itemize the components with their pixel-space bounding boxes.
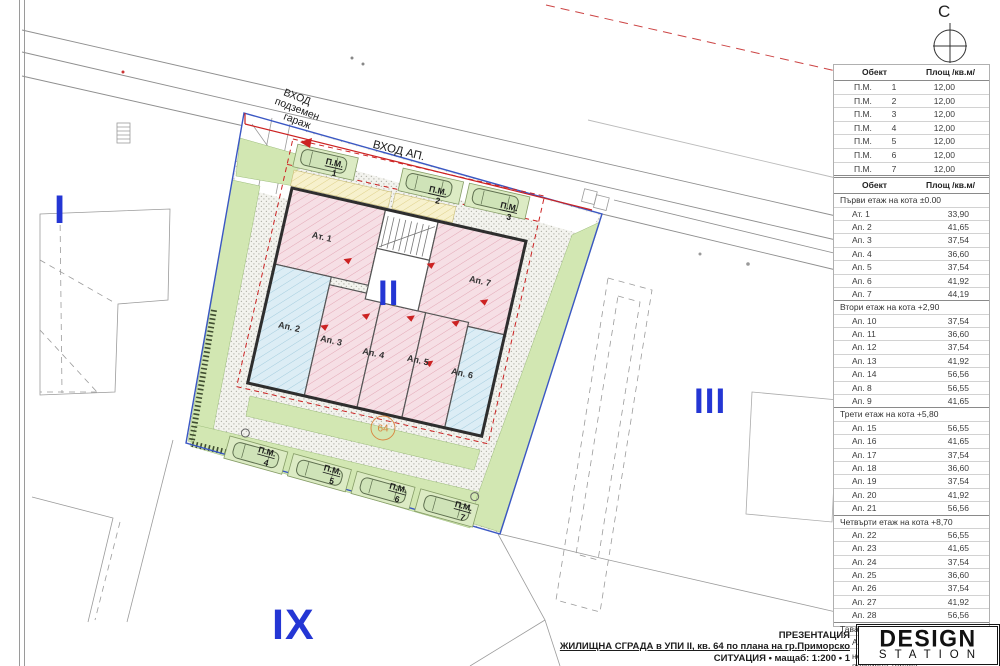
site-plan-page: Ат. 1 Ап. 2 Ап. 3 Ап. 4 Ап. 5 Ап. 6 Ап. …	[0, 0, 1000, 666]
table-row: Ап. 2856,56	[834, 608, 989, 621]
table-row: Ап. 2156,56	[834, 501, 989, 514]
table-row: Ап. 1456,56	[834, 367, 989, 380]
table-row: Ап. 1341,92	[834, 354, 989, 367]
table-row: Ат. 133,90	[834, 207, 989, 220]
table-row: Ап. 1737,54	[834, 448, 989, 461]
col-object: Обект	[834, 65, 908, 80]
table-row: П.М.412,00	[834, 121, 989, 135]
zone-label-i: I	[54, 190, 66, 230]
floor-section-title: Трети етаж на кота +5,80	[834, 407, 989, 420]
table-row: П.М.312,00	[834, 107, 989, 121]
table-row: Ап. 337,54	[834, 233, 989, 246]
floor-section-title: Втори етаж на кота +2,90	[834, 300, 989, 313]
table-row: Ап. 744,19	[834, 287, 989, 300]
table-row: Ап. 2437,54	[834, 555, 989, 568]
table-row: Ап. 2637,54	[834, 581, 989, 594]
plot-number-text: 64	[377, 424, 389, 435]
table-row: П.М.712,00	[834, 162, 989, 176]
table-row: Ап. 1237,54	[834, 340, 989, 353]
street-centerline-red-dashed	[546, 5, 836, 71]
north-letter: С	[938, 2, 950, 22]
table-row: Ап. 537,54	[834, 260, 989, 273]
design-station-logo: DESIGN STATION	[858, 626, 998, 665]
table-row: Ап. 1641,65	[834, 434, 989, 447]
apartments-table-sections: Първи етаж на кота ±0.00Ат. 133,90Ап. 24…	[834, 193, 989, 666]
col-area: Площ /кв.м/	[908, 178, 989, 193]
zone-label-iii: III	[694, 384, 726, 419]
parking-table-rows: П.М.112,00П.М.212,00П.М.312,00П.М.412,00…	[834, 81, 989, 175]
table-row: Ап. 2741,92	[834, 595, 989, 608]
apartments-table: Обект Площ /кв.м/ Първи етаж на кота ±0.…	[834, 178, 989, 666]
logo-line-design: DESIGN	[859, 626, 997, 649]
table-row: Ап. 2041,92	[834, 488, 989, 501]
title-line-situation: СИТУАЦИЯ • мащаб: 1:200 • 1	[560, 653, 850, 665]
table-row: П.М.112,00	[834, 81, 989, 94]
table-row: Ап. 2256,55	[834, 528, 989, 541]
floor-section-title: Четвърти етаж на кота +8,70	[834, 515, 989, 528]
col-object: Обект	[834, 178, 908, 193]
table-row: П.М.212,00	[834, 94, 989, 108]
col-area: Площ /кв.м/	[908, 65, 989, 80]
table-row: Ап. 641,92	[834, 274, 989, 287]
table-row: П.М.612,00	[834, 148, 989, 162]
table-row: Ап. 856,55	[834, 381, 989, 394]
zone-label-ix: IX	[272, 604, 315, 647]
area-tables-panel: Обект Площ /кв.м/ П.М.112,00П.М.212,00П.…	[833, 64, 990, 627]
table-row: Ап. 2341,65	[834, 541, 989, 554]
table-row: П.М.512,00	[834, 134, 989, 148]
title-line-project: ЖИЛИЩНА СГРАДА в УПИ II, кв. 64 по плана…	[560, 641, 850, 653]
title-block: ПРЕЗЕНТАЦИЯ ЖИЛИЩНА СГРАДА в УПИ II, кв.…	[560, 630, 850, 665]
table-row: Ап. 2536,60	[834, 568, 989, 581]
table-row: Ап. 1136,60	[834, 327, 989, 340]
table-row: Ап. 1836,60	[834, 461, 989, 474]
table-row: Ап. 941,65	[834, 394, 989, 407]
title-line-presentation: ПРЕЗЕНТАЦИЯ	[560, 630, 850, 642]
table-row: Ап. 436,60	[834, 247, 989, 260]
table-row: Ап. 1037,54	[834, 314, 989, 327]
zone-label-ii: II	[378, 276, 399, 311]
parking-table-header: Обект Площ /кв.м/	[834, 65, 989, 81]
parking-table: Обект Площ /кв.м/ П.М.112,00П.М.212,00П.…	[834, 65, 989, 178]
table-row: Ап. 1556,55	[834, 421, 989, 434]
apartments-table-header: Обект Площ /кв.м/	[834, 178, 989, 193]
table-row: Ап. 1937,54	[834, 474, 989, 487]
north-symbol	[933, 23, 967, 63]
floor-section-title: Първи етаж на кота ±0.00	[834, 193, 989, 206]
table-row: Ап. 241,65	[834, 220, 989, 233]
